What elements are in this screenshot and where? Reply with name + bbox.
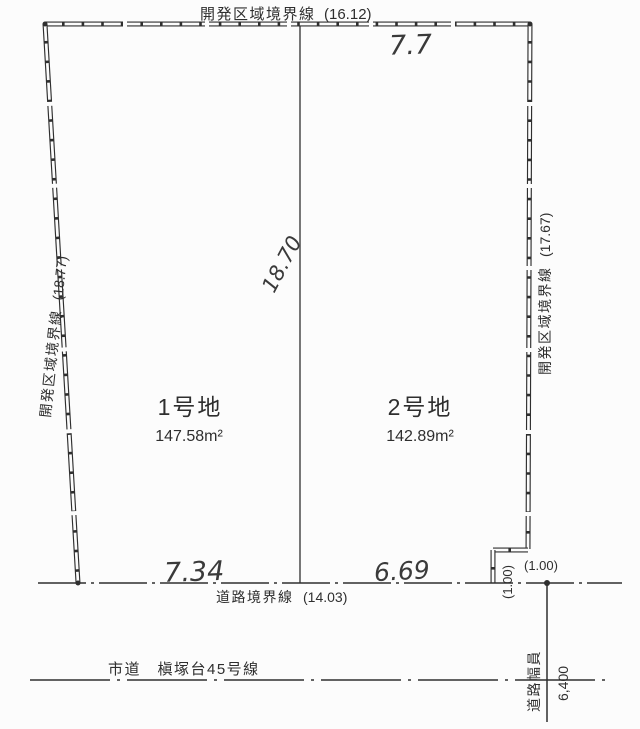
road-width-value: 6,400 xyxy=(555,666,571,701)
left-boundary-label: 開発区域境界線 xyxy=(37,309,64,419)
step-vertical-dimension: (1.00) xyxy=(500,565,515,599)
plot1-name-label: 1号地 xyxy=(158,394,223,420)
handwritten-plot1-frontage-dimension: 7.34 xyxy=(164,556,225,589)
plot2-area-label: 142.89m² xyxy=(386,428,454,445)
road-boundary-label: 道路境界線 xyxy=(216,589,294,605)
road-name-label: 市道 槇塚台45号線 xyxy=(108,661,260,678)
top-boundary-label: 開発区域境界線 xyxy=(200,5,316,23)
road-width-label: 道路幅員 xyxy=(526,650,542,712)
handwritten-top-partial-dimension: 7.7 xyxy=(388,29,432,61)
plot1-area-label: 147.58m² xyxy=(155,428,223,445)
corner-point-bottom-left xyxy=(76,581,81,586)
corner-point-top-right xyxy=(528,22,533,27)
left-boundary-line-inner xyxy=(45,24,78,583)
right-boundary-label: 開発区域境界線 xyxy=(537,267,553,376)
road-boundary-length: (14.03) xyxy=(303,589,347,605)
right-boundary-label-group: 開発区域境界線 (17.67) xyxy=(537,213,553,375)
right-boundary-length: (17.67) xyxy=(537,213,553,257)
development-boundary-lines xyxy=(45,24,530,583)
plot2-name-label: 2号地 xyxy=(388,394,453,420)
handwritten-center-depth-dimension: 18.70 xyxy=(257,232,306,296)
survey-drawing-svg: 開発区域境界線 (16.12) 開発区域境界線 (18.77) 開発区域境界線 … xyxy=(0,0,640,729)
land-survey-diagram: 開発区域境界線 (16.12) 開発区域境界線 (18.77) 開発区域境界線 … xyxy=(0,0,640,729)
left-boundary-length: (18.77) xyxy=(49,255,70,301)
corner-point-top-left xyxy=(43,22,48,27)
handwritten-plot2-frontage-dimension: 6.69 xyxy=(373,555,430,587)
road-width-reference-point xyxy=(544,580,550,586)
top-boundary-length: (16.12) xyxy=(324,6,372,23)
step-horizontal-dimension: (1.00) xyxy=(524,558,558,573)
